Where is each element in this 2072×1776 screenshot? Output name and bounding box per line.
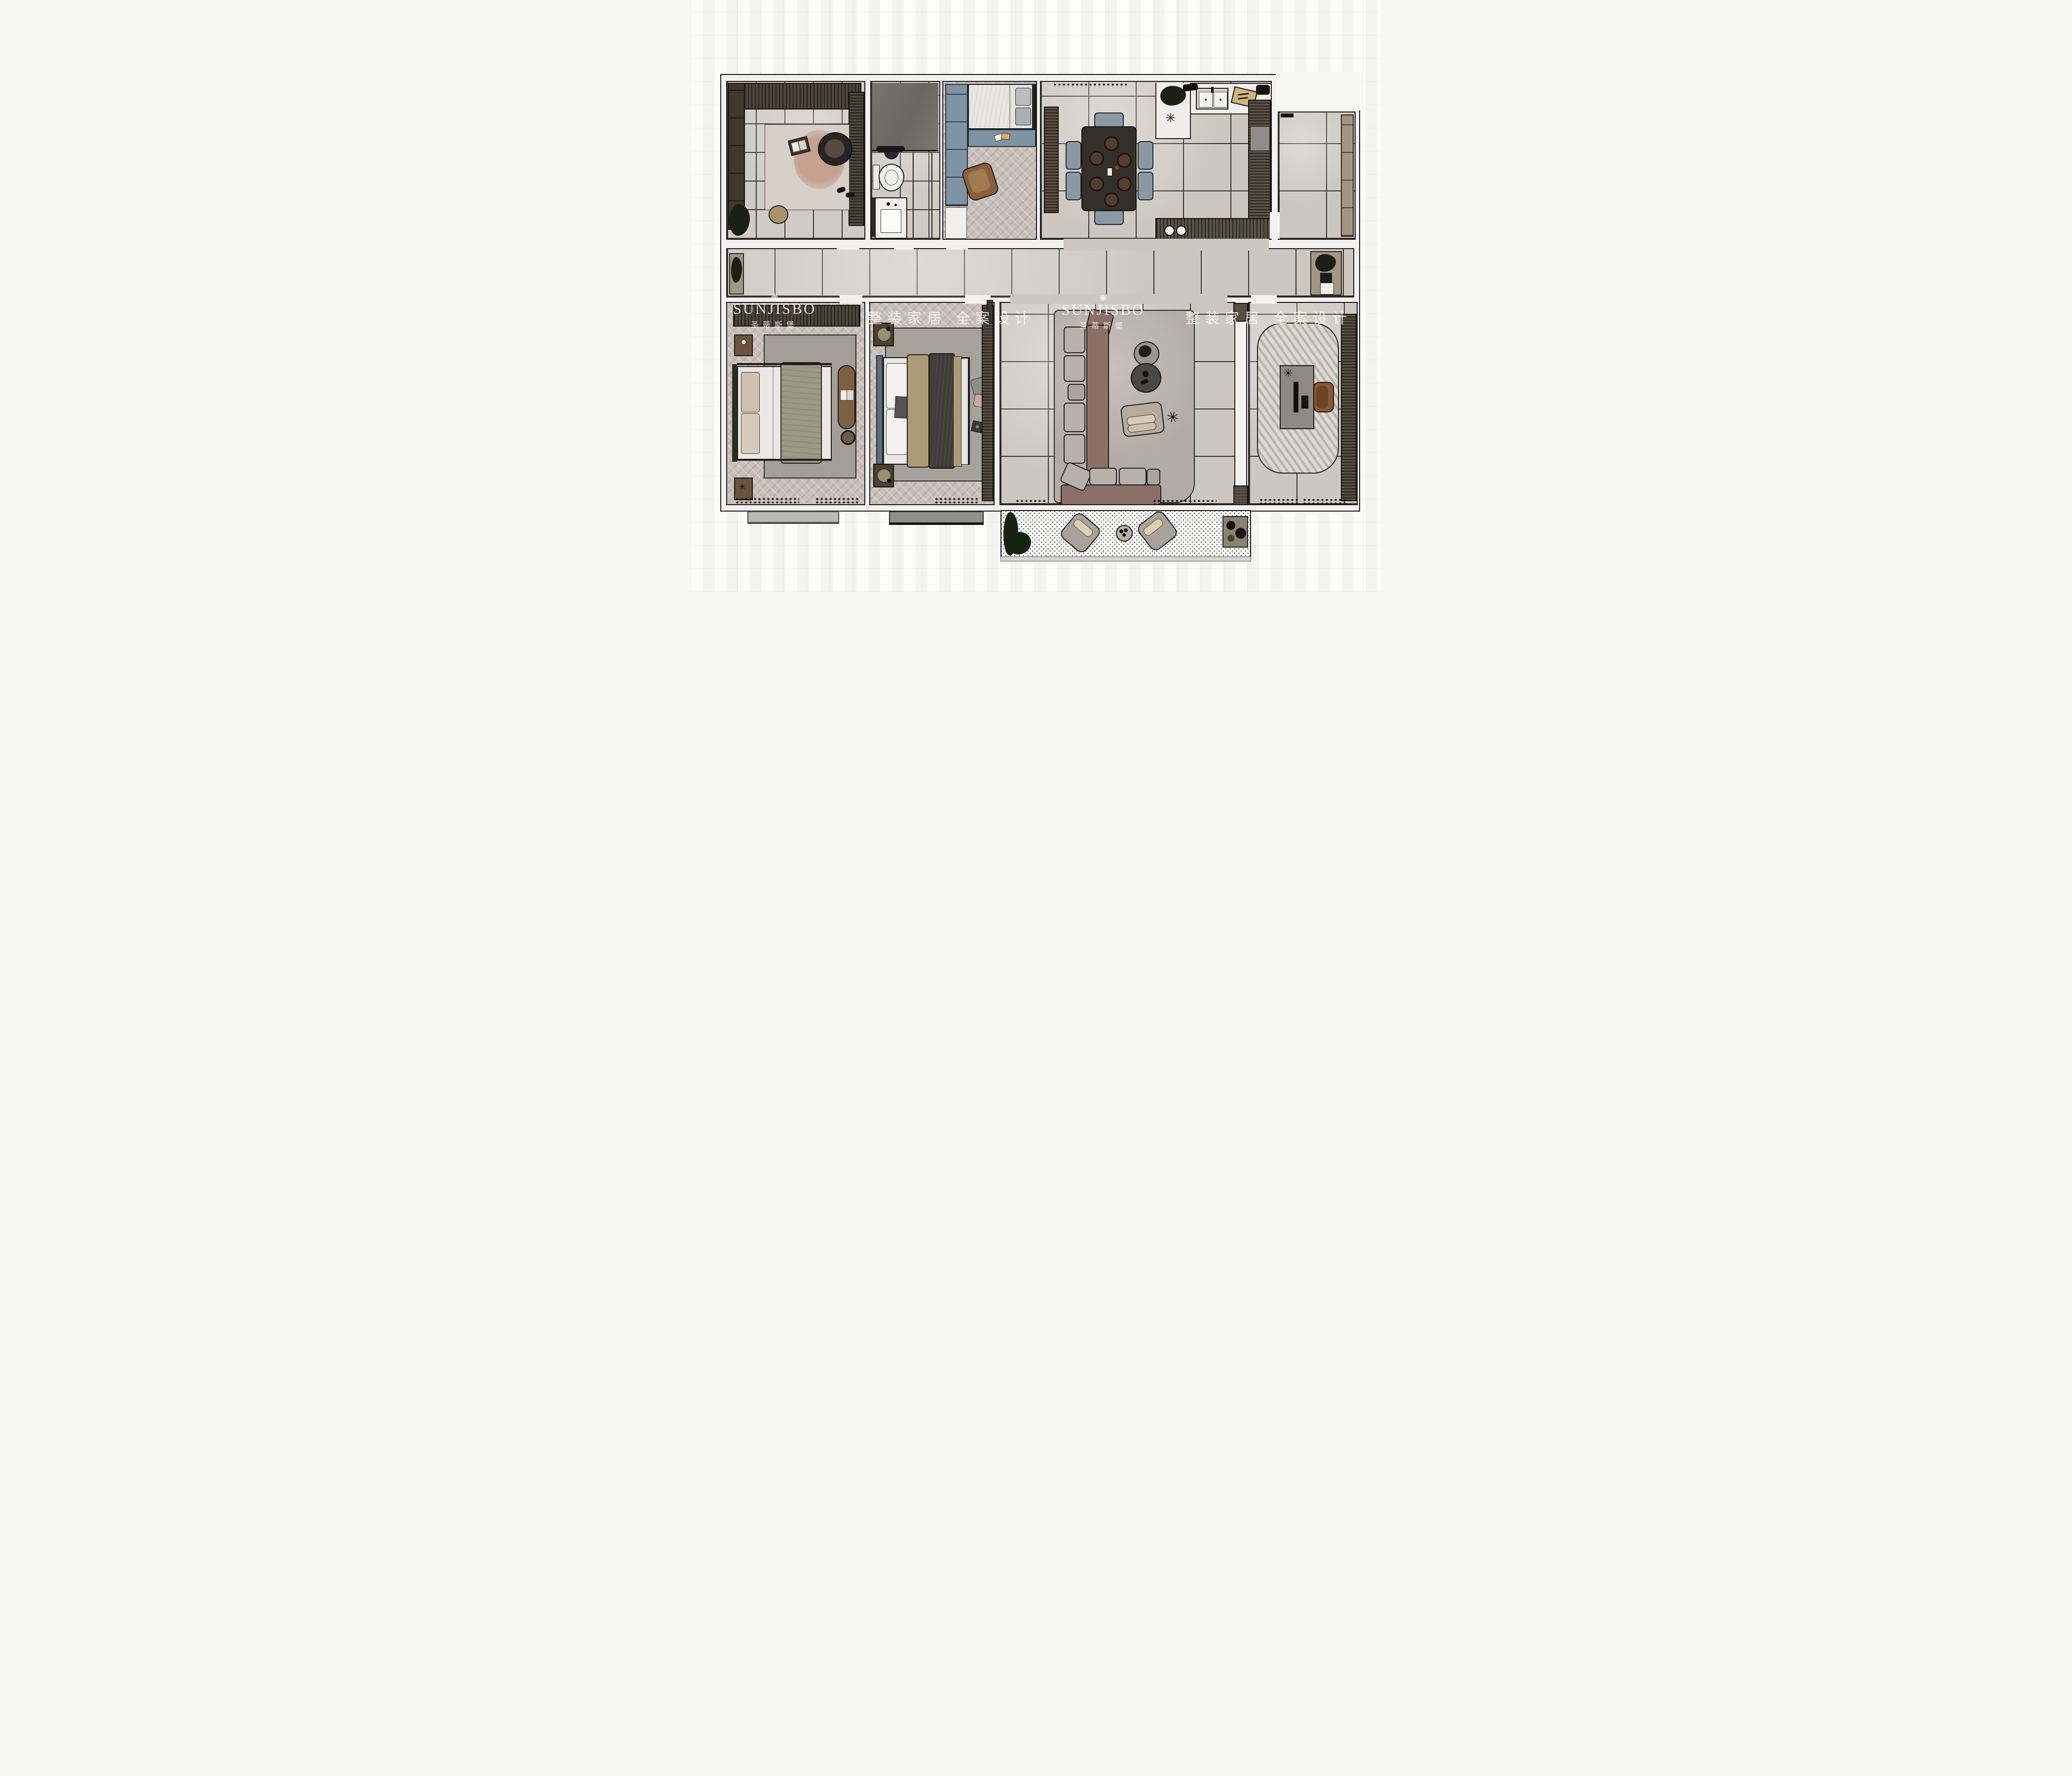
door-gap-cloakroom (837, 240, 859, 250)
hob-burner (1164, 225, 1175, 236)
hallway-planter (729, 253, 744, 295)
cup (1122, 533, 1126, 537)
armchair (1120, 401, 1165, 438)
desk-plant-icon: ✳ (1284, 368, 1293, 379)
room-right-balcony (1278, 111, 1356, 240)
floorplan-canvas: ✳ (691, 0, 1381, 592)
pillow (741, 372, 760, 412)
shower-glass-line (931, 152, 932, 238)
headboard (732, 364, 737, 462)
sofa-back-vertical (1086, 325, 1109, 473)
nightstand (734, 334, 753, 356)
sideboard (1044, 107, 1059, 213)
dining-chair (1066, 141, 1081, 170)
lamp (741, 339, 746, 345)
bed-rail (968, 357, 970, 465)
wardrobe-right (982, 305, 994, 501)
hob-burner (1176, 225, 1186, 236)
vanity-side-panel (871, 197, 875, 237)
window-greenery (1259, 498, 1298, 504)
sofa-seat-cushion (1064, 327, 1085, 353)
faucet (1211, 87, 1214, 93)
door-gap-study (1251, 295, 1277, 304)
window-greenery (815, 497, 860, 504)
door-leaf-second-bedroom (987, 300, 993, 324)
plant (1315, 254, 1336, 272)
sofa-seat-cushion (1068, 384, 1085, 401)
door-gap-master-bedroom (840, 295, 862, 304)
duvet-fold (1009, 85, 1010, 128)
outdoor-armchair (1058, 511, 1103, 555)
console-box (1320, 283, 1334, 295)
nightstand (873, 323, 894, 346)
decor-icon: ✳ (739, 482, 746, 491)
pillow (741, 413, 760, 454)
dining-chair (1066, 172, 1081, 200)
wardrobe-top (733, 305, 860, 327)
kitchen-sink (1196, 88, 1228, 110)
tan-blanket (907, 354, 929, 468)
bedroom-bench (838, 365, 855, 429)
window-greenery (1302, 498, 1348, 504)
lounge-chair (818, 132, 852, 166)
room-living: ✳ (999, 302, 1235, 505)
monitor (1294, 382, 1298, 412)
shower-glass-line (913, 152, 914, 238)
sheet-fold (773, 367, 774, 459)
door-gap-balcony-kitchen (1270, 212, 1280, 239)
room-bottom-balcony (1000, 510, 1251, 557)
door-gap-bathroom (894, 240, 914, 250)
door-mat (945, 207, 967, 239)
sink-basin (1214, 92, 1227, 108)
office-chair (1313, 382, 1334, 412)
plate (1104, 136, 1119, 151)
plant (729, 204, 750, 236)
vanity-sink (881, 209, 901, 233)
planter-pot (1226, 521, 1235, 530)
window-greenery (934, 497, 980, 504)
dining-table (1081, 126, 1137, 211)
faucet (887, 202, 890, 206)
shower-head-arm (884, 152, 899, 159)
window-greenery (1152, 499, 1217, 505)
opening-dining-hallway (1064, 239, 1269, 251)
charcoal-duvet (928, 353, 955, 469)
napkin (1107, 168, 1112, 176)
stool-dot (975, 425, 979, 428)
dining-chair (1138, 172, 1153, 200)
twig-decor-icon: ✳ (1165, 111, 1176, 124)
bookcase (1341, 314, 1357, 501)
exterior-stub-right (889, 511, 984, 525)
room-small-bedroom (942, 81, 1037, 240)
tv-media-wall (1234, 321, 1247, 486)
plate (1089, 151, 1104, 166)
table-plant (1139, 345, 1151, 357)
coffee-table-dark (1131, 363, 1161, 393)
planter-pot (1235, 528, 1246, 539)
room-second-bedroom (869, 302, 995, 505)
sofa-seat-cushion (1064, 434, 1085, 464)
olive-blanket (780, 362, 822, 464)
dining-chair (1094, 209, 1124, 225)
pillow (1015, 108, 1031, 125)
lounge-chair-cushion (825, 139, 845, 158)
headboard (1032, 85, 1035, 128)
toilet-seat (885, 170, 898, 185)
outdoor-side-table (1116, 525, 1133, 542)
plate (1104, 192, 1119, 207)
bed-rail (737, 363, 832, 365)
round-ottoman (841, 430, 855, 445)
knife (1238, 97, 1248, 99)
plate (1117, 177, 1132, 191)
bed-rail (737, 459, 832, 461)
room-master-bedroom: ✳ (726, 302, 865, 505)
pillow (1015, 88, 1031, 106)
range-hood-item (1256, 85, 1270, 95)
chair-cushion (967, 168, 992, 194)
vanity-counter (875, 197, 907, 239)
window-greenery (1053, 83, 1127, 87)
wardrobe-right (849, 92, 864, 226)
armchair-cushion (1072, 518, 1094, 538)
card (1001, 133, 1010, 140)
armchair-cushion (1142, 517, 1165, 537)
shower-marble-zone (872, 83, 938, 151)
bush (1008, 532, 1031, 555)
drain (1205, 99, 1207, 101)
built-in-appliance (1250, 126, 1270, 151)
sofa-armrest-cushion (1147, 469, 1160, 485)
toilet-bowl (879, 164, 904, 191)
room-cloakroom-lounge (726, 81, 865, 240)
console-decor (1320, 273, 1332, 283)
planter-greens (1227, 535, 1234, 542)
tv-side-cabinet (1233, 303, 1248, 322)
cup (1119, 529, 1123, 533)
entry-console (1310, 251, 1342, 296)
window-greenery (735, 497, 799, 504)
shower-head (876, 146, 905, 152)
door-track (1281, 113, 1294, 117)
decor-dot (886, 327, 890, 331)
nightstand (873, 464, 894, 487)
headboard (876, 355, 883, 467)
drain (1220, 99, 1221, 101)
cup (1124, 528, 1128, 532)
office-chair-seat (1316, 386, 1328, 408)
kitchen-counter-bottom (1155, 218, 1272, 240)
dining-chair (1138, 141, 1153, 170)
keyboard (1301, 396, 1308, 408)
plant (731, 257, 742, 283)
bed-bench-dresser (968, 129, 1036, 147)
top-right-notch (1276, 72, 1364, 111)
planter-box (1222, 516, 1248, 548)
opening-living-hallway (1010, 294, 1227, 304)
outdoor-armchair (1135, 509, 1180, 553)
room-study: ✳ (1248, 302, 1358, 505)
bed-small (968, 84, 1036, 129)
room-bathroom (870, 81, 940, 240)
plate (1089, 177, 1104, 191)
exterior-stub-left (747, 511, 839, 524)
table-decor (1140, 379, 1149, 385)
window-greenery (1015, 499, 1047, 504)
room-hallway (726, 248, 1354, 297)
sink-basin (1199, 92, 1213, 108)
sofa-seat-cushion (1064, 355, 1085, 382)
decor-dot (887, 479, 891, 483)
table-decor (1143, 371, 1148, 377)
balcony-sill (1000, 556, 1251, 561)
coffee-table-light (1134, 341, 1159, 366)
wardrobe-top (733, 83, 861, 110)
sofa-seat-cushion (1089, 468, 1117, 485)
knife (1238, 93, 1249, 96)
desk: ✳ (1280, 365, 1314, 429)
table-decor (1115, 166, 1119, 170)
plate (1117, 153, 1132, 168)
pouf (769, 205, 788, 224)
sofa-seat-cushion (1064, 403, 1085, 432)
room-dining-kitchen: ✳ (1040, 81, 1272, 240)
tv-side-cabinet (1233, 485, 1248, 505)
wardrobe-blue (945, 84, 968, 206)
door-gap-small-bedroom (946, 240, 968, 250)
open-magazine-page (847, 390, 854, 401)
soap-dish (894, 204, 897, 206)
balcony-shelf (1341, 114, 1354, 237)
sofa-seat-cushion (1119, 468, 1147, 485)
